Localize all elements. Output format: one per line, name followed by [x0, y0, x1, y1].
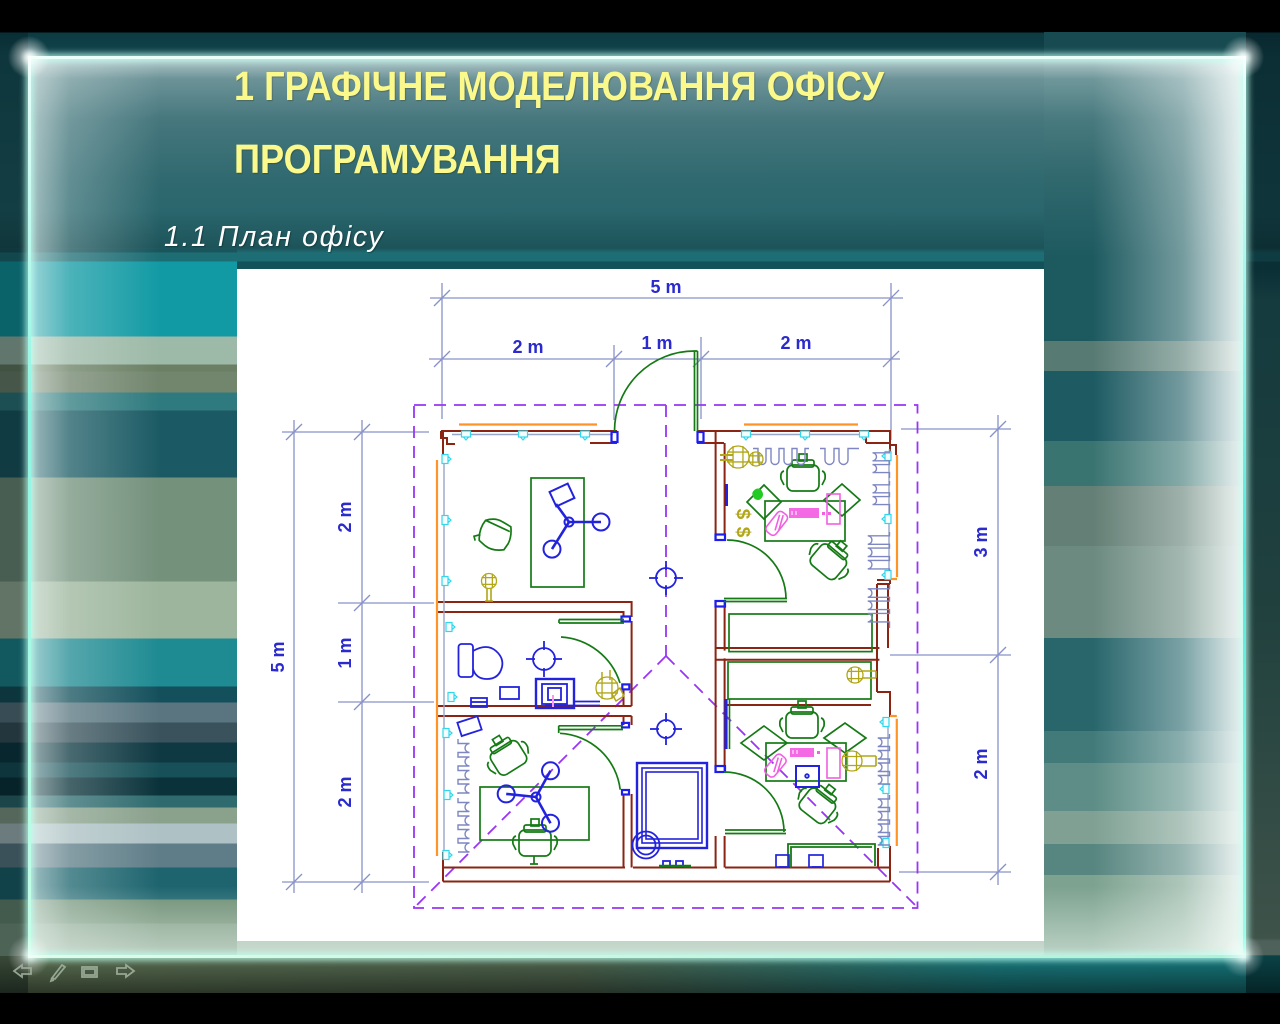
svg-text:$: $: [732, 527, 753, 538]
svg-text:2 m: 2 m: [512, 337, 543, 357]
svg-text:3 m: 3 m: [971, 526, 991, 557]
svg-text:2 m: 2 m: [971, 748, 991, 779]
svg-text:2 m: 2 m: [780, 333, 811, 353]
svg-text:2 m: 2 m: [335, 501, 355, 532]
svg-text:1 m: 1 m: [335, 637, 355, 668]
svg-text:$: $: [732, 509, 753, 520]
svg-text:5 m: 5 m: [650, 277, 681, 297]
svg-text:5 m: 5 m: [268, 641, 288, 672]
svg-text:2 m: 2 m: [335, 776, 355, 807]
svg-text:1 m: 1 m: [641, 333, 672, 353]
